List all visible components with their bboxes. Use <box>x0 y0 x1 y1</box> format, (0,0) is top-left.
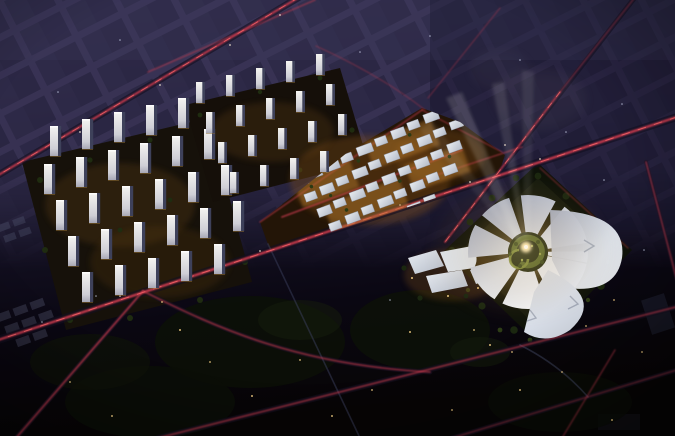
aerial-night-render <box>0 0 675 436</box>
vignette <box>0 0 675 436</box>
render-canvas <box>0 0 675 436</box>
